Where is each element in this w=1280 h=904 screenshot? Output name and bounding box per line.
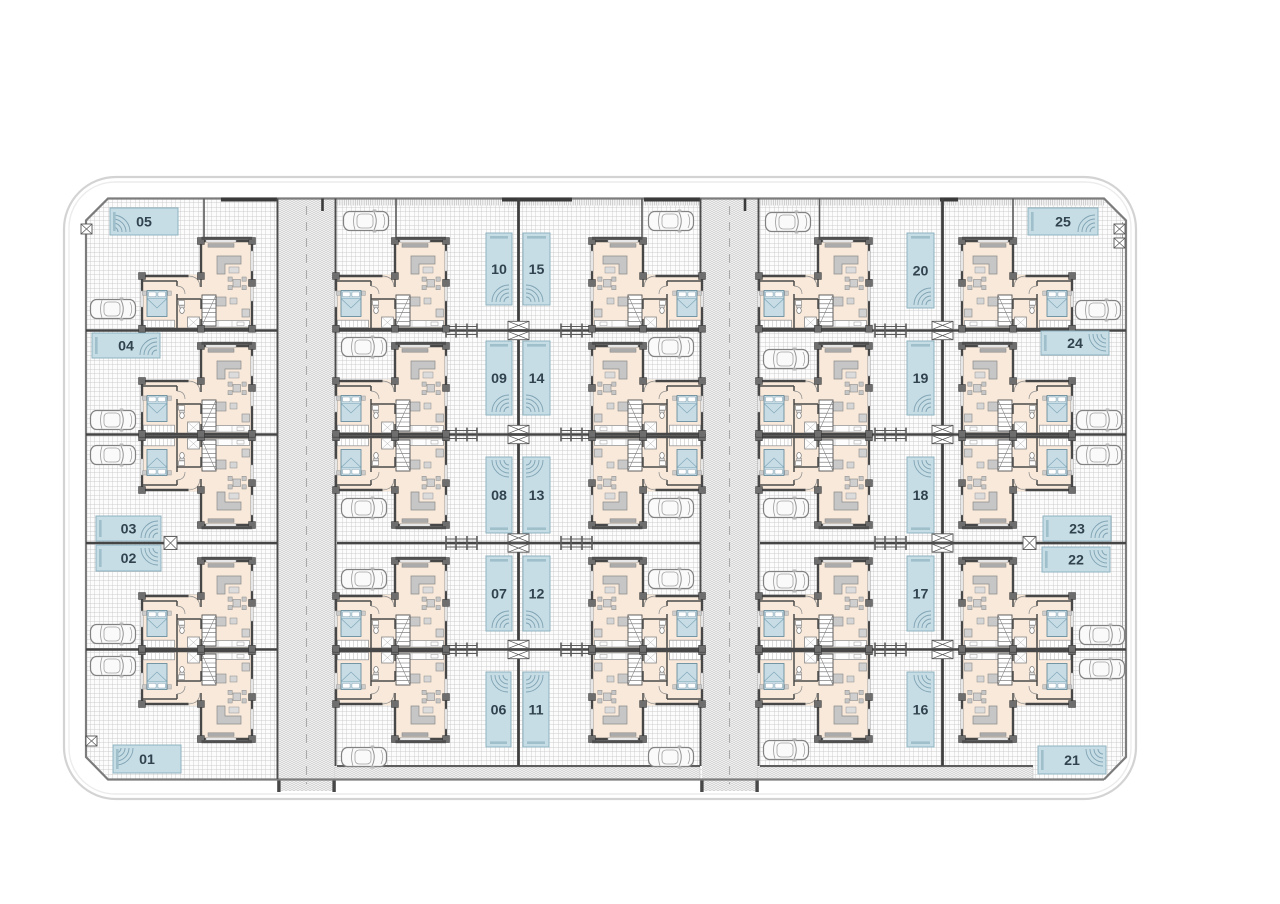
svg-text:16: 16: [913, 702, 929, 718]
svg-text:13: 13: [529, 488, 545, 504]
svg-text:07: 07: [491, 586, 507, 602]
svg-text:20: 20: [913, 263, 929, 279]
svg-text:06: 06: [491, 702, 507, 718]
svg-text:17: 17: [913, 586, 929, 602]
svg-text:10: 10: [491, 262, 507, 278]
svg-text:25: 25: [1055, 214, 1071, 230]
svg-text:02: 02: [121, 551, 137, 567]
svg-text:14: 14: [529, 371, 545, 387]
svg-text:12: 12: [529, 586, 545, 602]
svg-text:24: 24: [1067, 336, 1083, 352]
svg-text:21: 21: [1064, 753, 1080, 769]
svg-text:03: 03: [121, 521, 137, 537]
svg-text:08: 08: [491, 488, 507, 504]
svg-text:04: 04: [118, 338, 134, 354]
svg-text:19: 19: [913, 371, 929, 387]
svg-text:05: 05: [136, 214, 152, 230]
svg-text:22: 22: [1068, 552, 1084, 568]
svg-text:11: 11: [529, 702, 544, 718]
svg-text:15: 15: [529, 262, 545, 278]
svg-text:23: 23: [1069, 521, 1085, 537]
svg-text:18: 18: [913, 488, 929, 504]
svg-text:01: 01: [139, 752, 155, 768]
svg-text:09: 09: [491, 371, 507, 387]
